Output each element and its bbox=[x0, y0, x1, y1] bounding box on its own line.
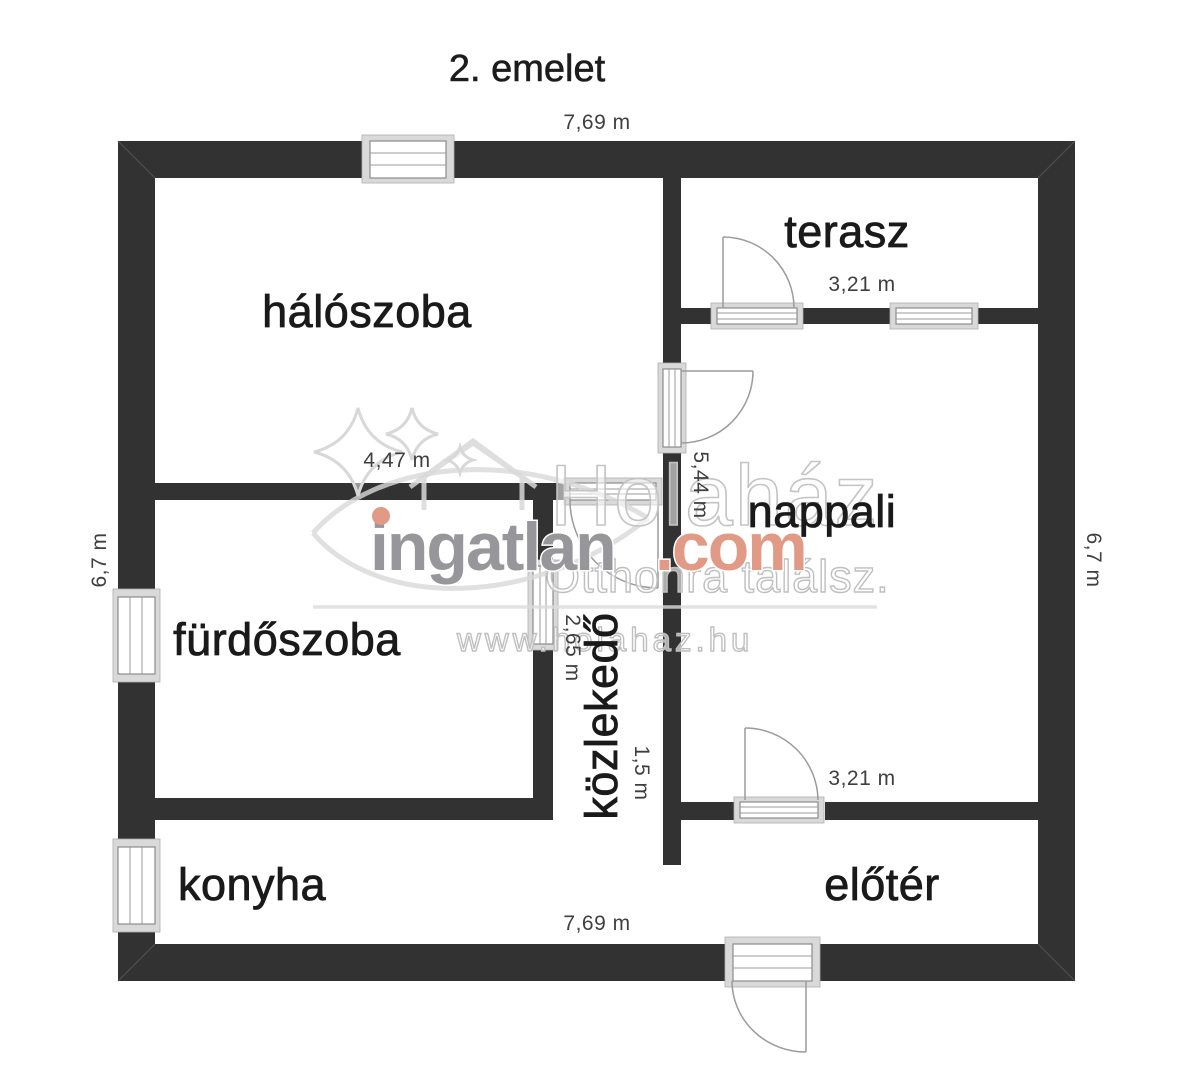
door-swing-entrance bbox=[732, 981, 806, 1052]
brand-i-dot-icon bbox=[372, 507, 390, 525]
room-label-haloszoba: hálószoba bbox=[262, 286, 472, 337]
dim-height-left: 6,7 m bbox=[88, 532, 111, 587]
wall-eloter-top-right bbox=[825, 802, 1038, 820]
window-haloszoba-top bbox=[362, 135, 454, 183]
wall-haloszoba-terasz bbox=[663, 178, 681, 365]
room-label-eloter: előtér bbox=[824, 859, 940, 910]
room-label-kozlekedo: közlekedő bbox=[576, 612, 627, 819]
door-swing-eloter bbox=[745, 728, 818, 800]
door-frame-terasz bbox=[711, 303, 803, 329]
door-frame-eloter bbox=[734, 797, 824, 823]
dim-height-right: 6,7 m bbox=[1082, 532, 1105, 587]
wall-eloter-top-left bbox=[663, 802, 737, 820]
dim-nappali-height: 5,44 m bbox=[689, 451, 712, 518]
room-label-nappali: nappali bbox=[748, 486, 897, 537]
floor-plan-canvas: Holaház Otthonra találsz. www.holahaz.hu… bbox=[0, 0, 1195, 1080]
floor-plan-page: Holaház Otthonra találsz. www.holahaz.hu… bbox=[0, 0, 1195, 1080]
door-frame-entrance bbox=[725, 937, 820, 987]
window-terasz bbox=[890, 303, 978, 329]
room-label-konyha: konyha bbox=[178, 859, 327, 910]
floor-title: 2. emelet bbox=[449, 48, 606, 90]
dim-haloszoba-width: 4,47 m bbox=[363, 449, 430, 472]
door-swing-haloszoba-nappali bbox=[681, 371, 753, 443]
dim-terasz-width: 3,21 m bbox=[828, 273, 895, 296]
wall-terasz-bottom-right bbox=[977, 308, 1038, 324]
wall-furdoszoba-bottom bbox=[155, 798, 553, 820]
dim-eloter-width: 3,21 m bbox=[828, 767, 895, 790]
window-konyha bbox=[113, 839, 160, 932]
wall-exterior-right bbox=[1038, 141, 1075, 981]
wall-exterior-top bbox=[118, 141, 1075, 178]
wall-terasz-bottom-mid bbox=[800, 308, 892, 324]
room-label-furdoszoba: fürdőszoba bbox=[173, 614, 401, 665]
wall-furdoszoba-right-lower bbox=[533, 650, 553, 820]
wall-terasz-bottom-left bbox=[681, 308, 715, 324]
dim-width-bottom: 7,69 m bbox=[563, 912, 630, 935]
dim-width-top: 7,69 m bbox=[563, 111, 630, 134]
wall-exterior-bottom bbox=[118, 944, 1075, 981]
room-label-terasz: terasz bbox=[784, 206, 910, 257]
door-frame-haloszoba-nappali bbox=[658, 363, 686, 453]
watermark-brand: ingatlan bbox=[370, 509, 615, 585]
window-furdoszoba bbox=[113, 589, 160, 682]
dim-kozlekedo-width: 1,5 m bbox=[630, 745, 653, 800]
